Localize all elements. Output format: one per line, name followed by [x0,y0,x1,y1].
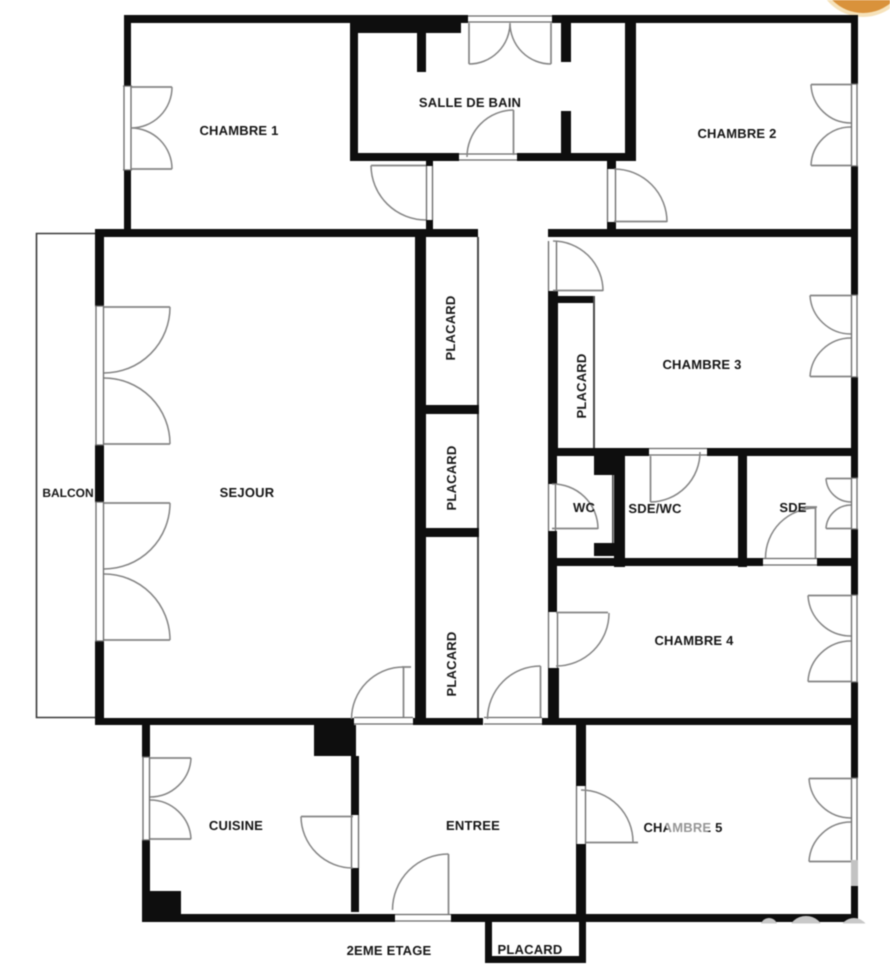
svg-text:2EME ETAGE: 2EME ETAGE [347,943,432,958]
svg-text:SEJOUR: SEJOUR [220,485,275,500]
svg-text:CHAMBRE 1: CHAMBRE 1 [199,123,278,138]
svg-text:CHAMBRE 3: CHAMBRE 3 [662,357,741,372]
svg-text:SDE/WC: SDE/WC [628,501,682,516]
svg-text:BALCON: BALCON [42,486,93,500]
svg-text:PLACARD: PLACARD [444,632,459,697]
svg-text:SDE: SDE [779,500,806,515]
svg-text:PLACARD: PLACARD [443,296,458,361]
svg-text:PLACARD: PLACARD [444,446,459,511]
svg-text:SALLE DE BAIN: SALLE DE BAIN [419,95,521,110]
svg-text:WC: WC [573,500,595,515]
svg-text:CHAMBRE 2: CHAMBRE 2 [697,126,776,141]
svg-text:PLACARD: PLACARD [574,354,589,419]
svg-text:CUISINE: CUISINE [209,818,263,833]
svg-text:CHAMBRE 4: CHAMBRE 4 [654,633,734,648]
svg-text:PLACARD: PLACARD [498,942,563,957]
svg-text:ENTREE: ENTREE [446,818,500,833]
